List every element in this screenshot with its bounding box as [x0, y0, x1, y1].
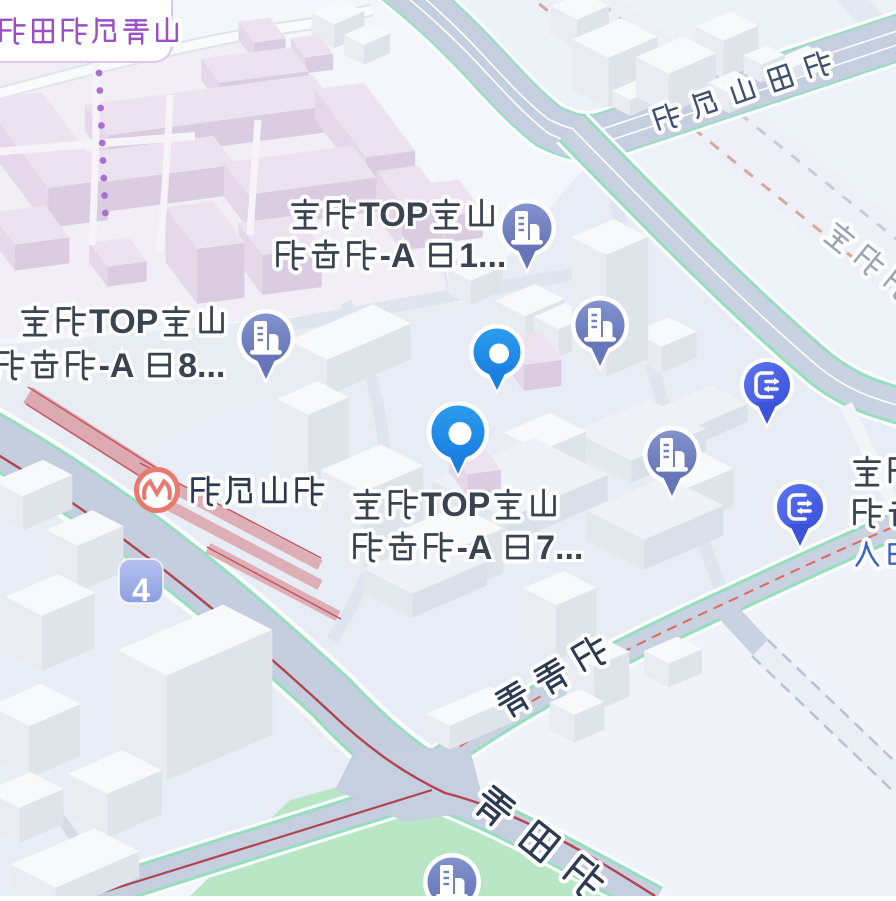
svg-text:1...: 1... — [459, 237, 506, 275]
svg-text:7...: 7... — [536, 529, 583, 567]
svg-text:4: 4 — [132, 572, 150, 608]
svg-text:-A: -A — [457, 529, 493, 567]
svg-text:TOP: TOP — [421, 486, 490, 524]
svg-text:-A: -A — [380, 237, 416, 275]
svg-text:8...: 8... — [178, 347, 225, 385]
svg-text:TOP: TOP — [359, 196, 428, 234]
svg-text:-A: -A — [99, 347, 135, 385]
svg-text:TOP: TOP — [89, 303, 158, 341]
